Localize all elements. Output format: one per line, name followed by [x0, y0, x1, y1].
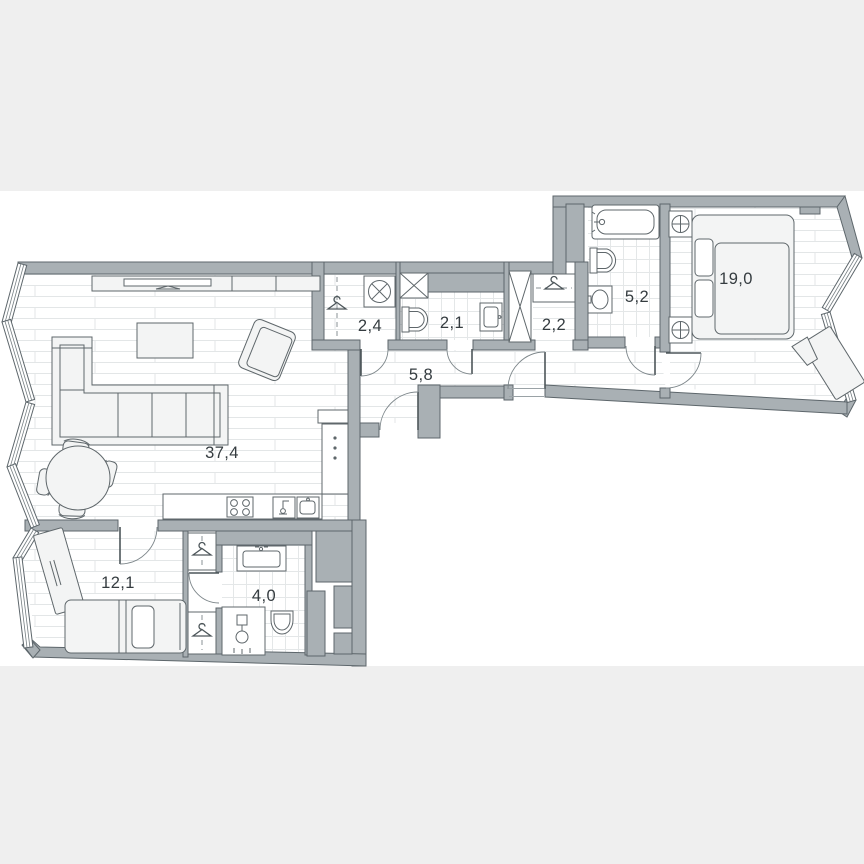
- bottom-background-band: [0, 666, 864, 864]
- top-background-band: [0, 0, 864, 191]
- fridge-icon: [322, 424, 348, 494]
- wall: [418, 385, 440, 438]
- closet-fixtures: [533, 274, 575, 302]
- area-label-main-bathroom: 5,2: [625, 288, 649, 306]
- wall: [504, 385, 513, 400]
- wall: [216, 545, 222, 572]
- wall: [18, 262, 553, 274]
- duct: [316, 531, 352, 582]
- wall: [396, 262, 400, 340]
- wall: [352, 520, 366, 666]
- area-label-second-bedroom: 12,1: [101, 574, 135, 592]
- nightstand-lamp-icon: [669, 317, 692, 343]
- wall: [158, 520, 360, 531]
- stove-icon: [227, 497, 253, 517]
- wall: [573, 340, 588, 350]
- wall: [216, 608, 222, 654]
- shower-icon: [222, 607, 265, 655]
- toilet-icon: [590, 248, 616, 273]
- wardrobe-cabinet: [188, 533, 216, 570]
- wall: [575, 262, 588, 348]
- duct: [334, 633, 352, 654]
- wall: [588, 337, 625, 348]
- washing-machine-icon: [364, 276, 395, 307]
- wall: [504, 262, 509, 340]
- wall: [553, 196, 566, 274]
- duct: [566, 204, 584, 262]
- wall: [660, 388, 670, 398]
- coffee-table-icon: [137, 323, 193, 358]
- vent-shaft-icon: [400, 273, 428, 298]
- kitchen-counter-end: [318, 410, 348, 423]
- bed-icon: [65, 600, 186, 653]
- vent-shaft-icon: [509, 271, 531, 342]
- area-label-hallway: 5,8: [409, 366, 433, 384]
- bathtub-icon: [592, 205, 659, 239]
- floorplan-canvas: 37,4 2,4 2,1 2,2 5,8 5,2 19,0 12,1 4,0: [0, 0, 864, 864]
- kitchen-sink-icon: [297, 497, 319, 518]
- sink-icon: [237, 546, 286, 571]
- wall: [428, 273, 504, 292]
- corridor-floor: [545, 350, 666, 390]
- area-label-guest-bathroom: 2,1: [440, 314, 464, 332]
- wardrobe-cabinet: [188, 612, 216, 654]
- wall: [800, 207, 820, 214]
- wall: [216, 531, 312, 545]
- duct: [307, 591, 325, 656]
- wall: [388, 340, 447, 350]
- sink-icon: [480, 303, 502, 331]
- toilet-icon: [271, 611, 293, 634]
- wall: [312, 340, 360, 350]
- tv-console-icon: [92, 276, 320, 291]
- area-label-master-bedroom: 19,0: [719, 270, 753, 288]
- wall: [312, 262, 324, 348]
- area-label-closet: 2,2: [542, 316, 566, 334]
- wardrobe-passage-floor: [188, 570, 216, 612]
- area-label-living: 37,4: [205, 444, 239, 462]
- area-label-wardrobe: 2,4: [358, 317, 382, 335]
- tv-icon: [124, 279, 211, 286]
- duct: [334, 586, 352, 628]
- wall: [25, 520, 118, 531]
- nightstand-lamp-icon: [669, 211, 692, 237]
- wall: [348, 348, 360, 520]
- sink-icon: [588, 286, 612, 313]
- faucet-icon: [273, 497, 295, 518]
- area-label-ensuite-bathroom: 4,0: [252, 587, 276, 605]
- toilet-icon: [402, 307, 428, 332]
- floorplan-svg: 37,4 2,4 2,1 2,2 5,8 5,2 19,0 12,1 4,0: [0, 0, 864, 864]
